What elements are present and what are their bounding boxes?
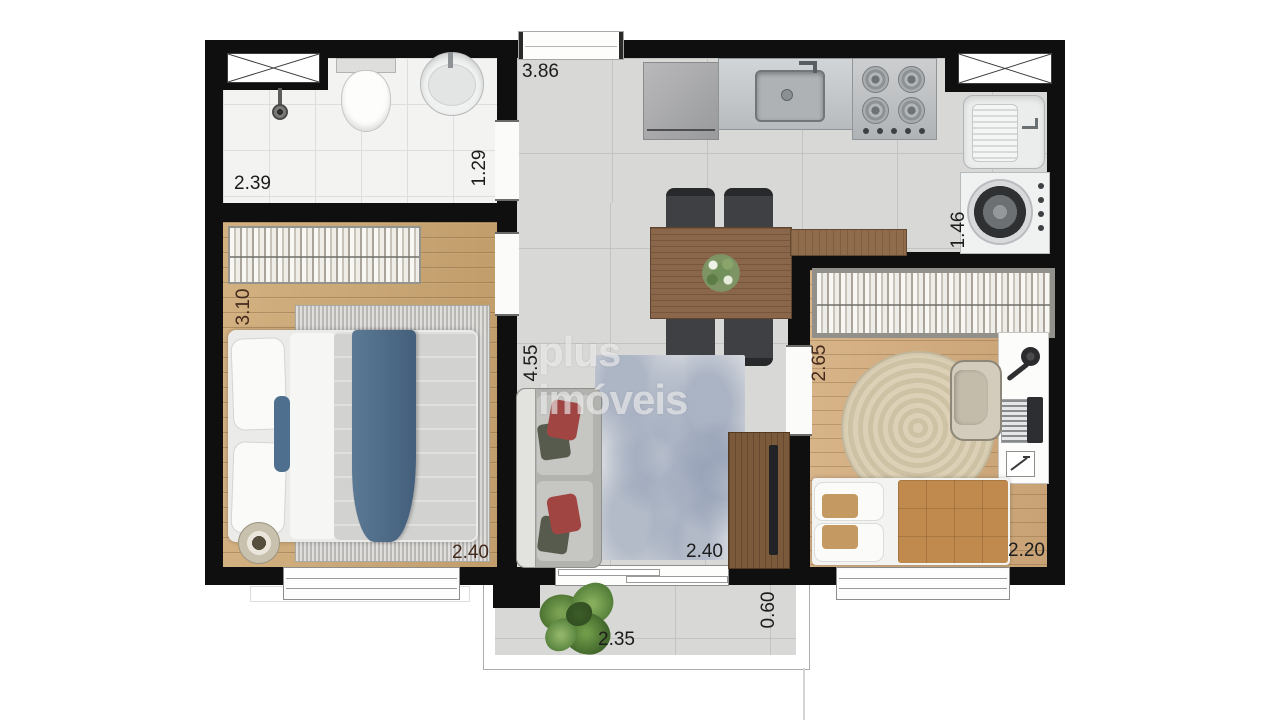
wall-bottom-4 <box>1008 567 1065 585</box>
toilet <box>336 58 394 134</box>
laundry-tank <box>963 95 1045 169</box>
washing-machine <box>960 172 1050 254</box>
sofa-backrest <box>517 389 536 567</box>
knob-icon <box>891 128 897 134</box>
drain-icon <box>781 89 793 101</box>
tv-console <box>728 432 790 569</box>
shower-knob <box>272 104 288 120</box>
floor-plan: 3.86 2.39 1.29 3.10 4.55 2.65 1.46 2.40 … <box>0 0 1280 720</box>
caramel-blanket <box>898 480 1008 563</box>
knob-icon <box>905 128 911 134</box>
washer-control <box>1038 211 1044 217</box>
sink-inner <box>428 64 476 106</box>
shaft-box-left <box>227 53 320 83</box>
wall-bottom-3 <box>727 567 836 585</box>
dim-bathroom-depth: 1.29 <box>470 144 490 192</box>
terrace-edge-line <box>803 668 805 720</box>
faucet-icon <box>1035 118 1038 129</box>
dining-table <box>650 227 792 319</box>
bedroom2-bed <box>812 478 1010 565</box>
dim-balcony-depth: 0.60 <box>759 586 779 634</box>
dim-laundry-depth: 1.46 <box>949 206 969 254</box>
washer-control <box>1038 183 1044 189</box>
faucet-icon <box>448 52 453 68</box>
laptop-keyboard <box>1001 399 1029 443</box>
washer-control <box>1038 225 1044 231</box>
shaft-box-right <box>958 53 1052 84</box>
dim-bedroom2-width: 2.20 <box>1008 541 1045 561</box>
dim-bathroom-width: 2.39 <box>234 174 271 194</box>
bedroom1-bed <box>228 330 478 542</box>
dim-balcony-width: 2.35 <box>598 630 635 650</box>
blue-accent-pillow <box>274 396 290 472</box>
bedroom1-door-opening <box>495 232 519 316</box>
folded-tan-pillow <box>822 525 858 549</box>
burner-icon <box>862 97 889 124</box>
dim-bedroom1-width: 2.40 <box>452 543 489 563</box>
wall-left <box>205 40 223 585</box>
washer-control <box>1038 197 1044 203</box>
chair-seat <box>954 370 988 425</box>
dim-kitchen-width: 3.86 <box>522 62 559 82</box>
round-pouf <box>238 522 280 564</box>
door-threshold <box>525 46 617 47</box>
bathroom-door-opening <box>495 120 519 201</box>
cabinet-handle <box>647 129 715 131</box>
x-cross-icon <box>959 54 1051 83</box>
shower-head-icon <box>272 88 288 124</box>
bathroom-sink <box>420 52 484 116</box>
sideboard <box>790 229 907 256</box>
tank-ribs <box>972 104 1018 162</box>
wall-bottom-1 <box>205 567 283 585</box>
kitchen-sink-counter <box>718 58 854 130</box>
folded-tan-pillow <box>822 494 858 518</box>
bedroom1-wardrobe <box>228 226 421 284</box>
wall-top <box>205 40 1065 58</box>
dim-bedroom2-depth: 2.65 <box>810 339 830 387</box>
sheet-fold <box>290 333 336 539</box>
wall-bath-bedroom1 <box>205 203 517 222</box>
notepad-icon <box>1006 451 1035 477</box>
desk-chair <box>950 360 1002 441</box>
knob-icon <box>919 128 925 134</box>
bedroom1-window <box>283 567 460 600</box>
washer-drum <box>967 179 1033 245</box>
burner-icon <box>898 66 925 93</box>
entry-door <box>518 31 624 60</box>
red-pillow <box>546 493 582 536</box>
laptop-screen <box>1027 397 1043 443</box>
pen-arrow-icon <box>1007 452 1034 476</box>
desk-lamp-icon <box>1021 347 1040 366</box>
dim-living-width: 2.40 <box>686 542 723 562</box>
toilet-bowl <box>341 70 391 132</box>
sliding-panel <box>558 569 660 576</box>
x-cross-icon <box>228 54 319 82</box>
burner-icon <box>862 66 889 93</box>
knob-icon <box>863 128 869 134</box>
door-jamb-icon <box>519 32 523 59</box>
watermark: plus imóveis <box>538 328 768 424</box>
faucet-icon <box>813 61 817 73</box>
blue-throw-blanket <box>352 330 416 542</box>
plant-centerpiece <box>699 251 743 295</box>
dim-bedroom1-depth: 3.10 <box>234 283 254 331</box>
door-jamb-icon <box>619 32 623 59</box>
knob-icon <box>877 128 883 134</box>
tv-icon <box>769 445 778 555</box>
wall-balcony-corner <box>493 583 540 608</box>
sliding-panel <box>626 576 728 583</box>
bedroom2-window <box>836 567 1010 600</box>
bedroom2-wardrobe <box>812 268 1055 338</box>
desk <box>998 332 1049 484</box>
burner-icon <box>898 97 925 124</box>
counter-cabinet <box>643 62 719 140</box>
cooktop <box>852 58 937 140</box>
